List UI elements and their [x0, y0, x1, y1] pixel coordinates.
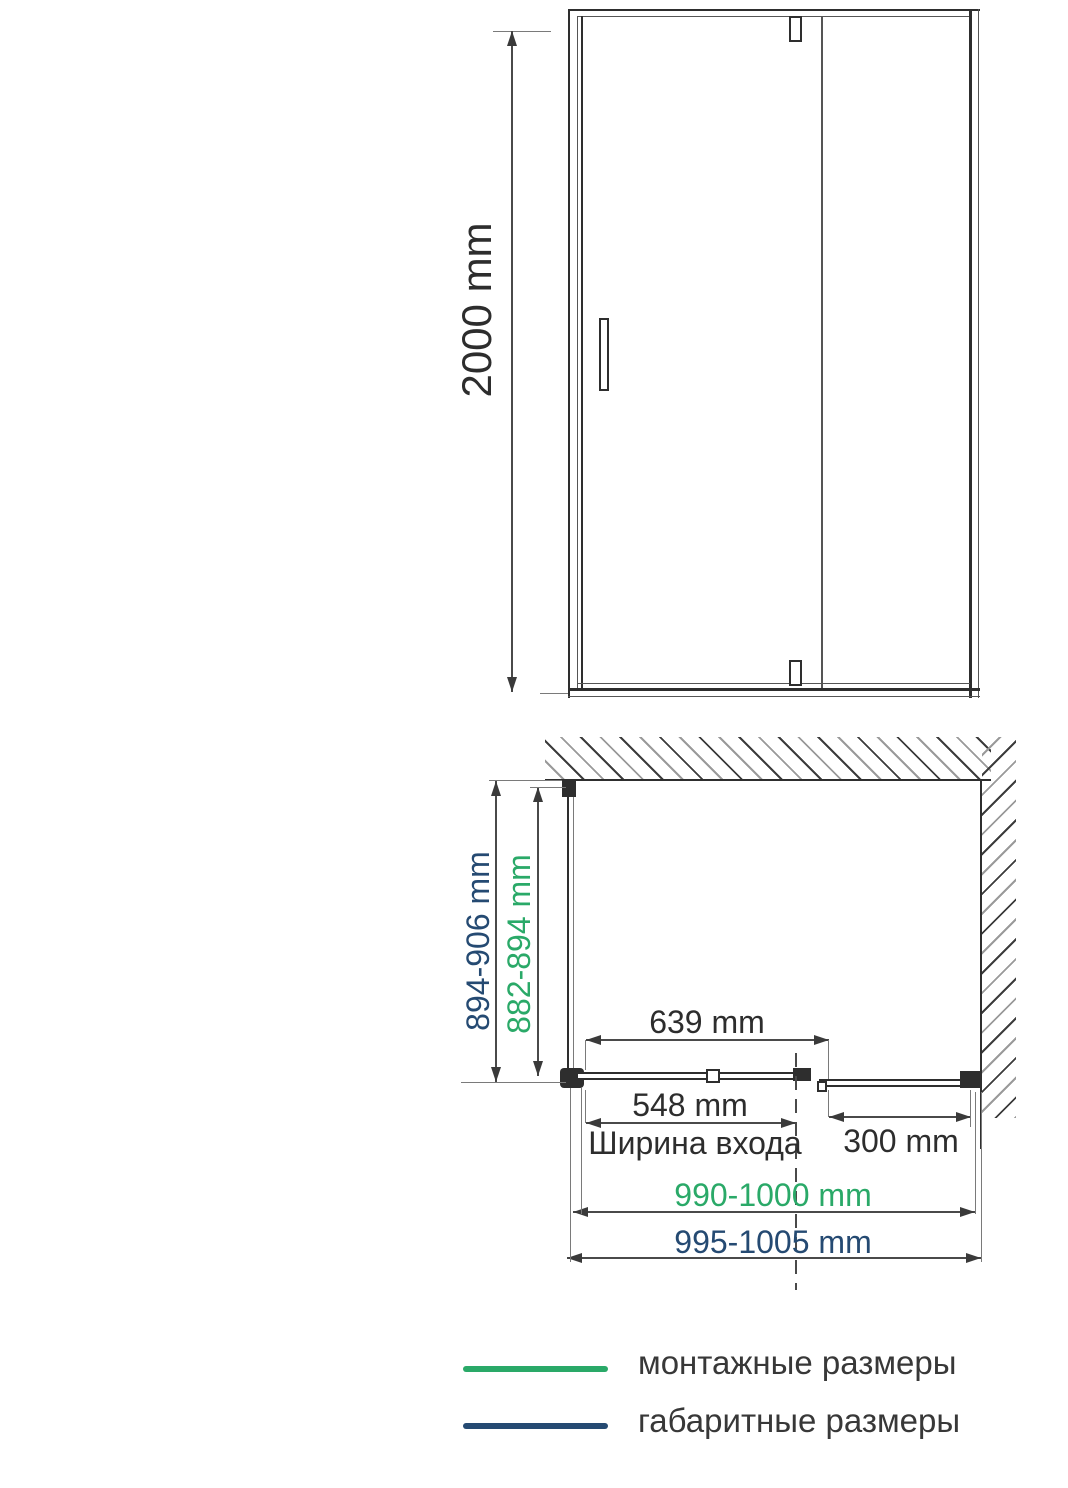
- legend-mounting-label: монтажные размеры: [638, 1344, 956, 1382]
- legend-mounting-swatch: [463, 1366, 608, 1372]
- legend-overall-label: габаритные размеры: [638, 1402, 960, 1440]
- technical-drawing: 2000 mm 639 mm 548 mm Ширина: [0, 0, 1068, 1488]
- legend: монтажные размеры габаритные размеры: [0, 0, 1068, 1488]
- legend-overall-swatch: [463, 1423, 608, 1429]
